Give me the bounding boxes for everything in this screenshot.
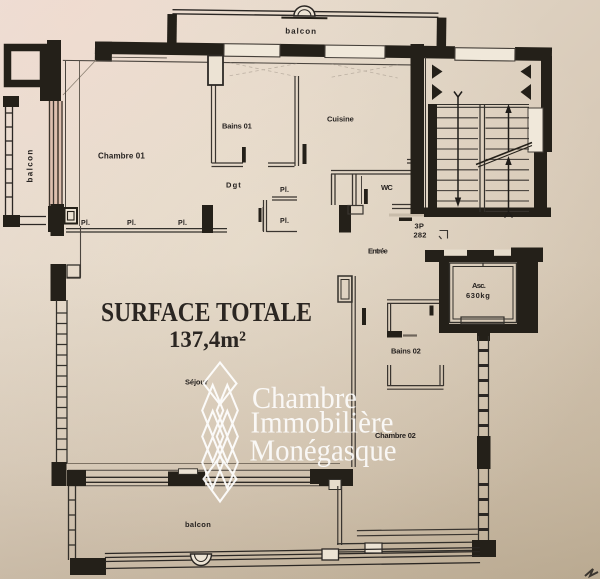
svg-text:282: 282: [414, 231, 427, 240]
svg-text:Entrée: Entrée: [368, 247, 388, 256]
svg-text:Cuisine: Cuisine: [327, 115, 354, 124]
svg-text:Pl.: Pl.: [280, 218, 289, 225]
svg-text:Dgt: Dgt: [226, 181, 241, 190]
svg-text:630kg: 630kg: [466, 291, 490, 300]
svg-text:Pl.: Pl.: [178, 220, 187, 227]
svg-text:balcon: balcon: [285, 26, 316, 35]
svg-text:Chambre 01: Chambre 01: [98, 152, 145, 161]
svg-text:Asc.: Asc.: [472, 281, 486, 290]
svg-text:Monégasque: Monégasque: [250, 434, 397, 468]
svg-text:balcon: balcon: [185, 520, 211, 529]
svg-text:Pl.: Pl.: [81, 220, 90, 227]
svg-text:Bains 02: Bains 02: [391, 347, 421, 356]
svg-text:Pl.: Pl.: [280, 187, 289, 194]
svg-text:balcon: balcon: [26, 150, 35, 183]
svg-text:WC: WC: [381, 183, 393, 192]
svg-text:SURFACE TOTALE: SURFACE TOTALE: [101, 296, 312, 327]
svg-text:3P: 3P: [415, 222, 425, 231]
svg-text:137,4m²: 137,4m²: [169, 327, 246, 353]
svg-text:Bains 01: Bains 01: [222, 122, 252, 131]
svg-text:Pl.: Pl.: [127, 220, 136, 227]
